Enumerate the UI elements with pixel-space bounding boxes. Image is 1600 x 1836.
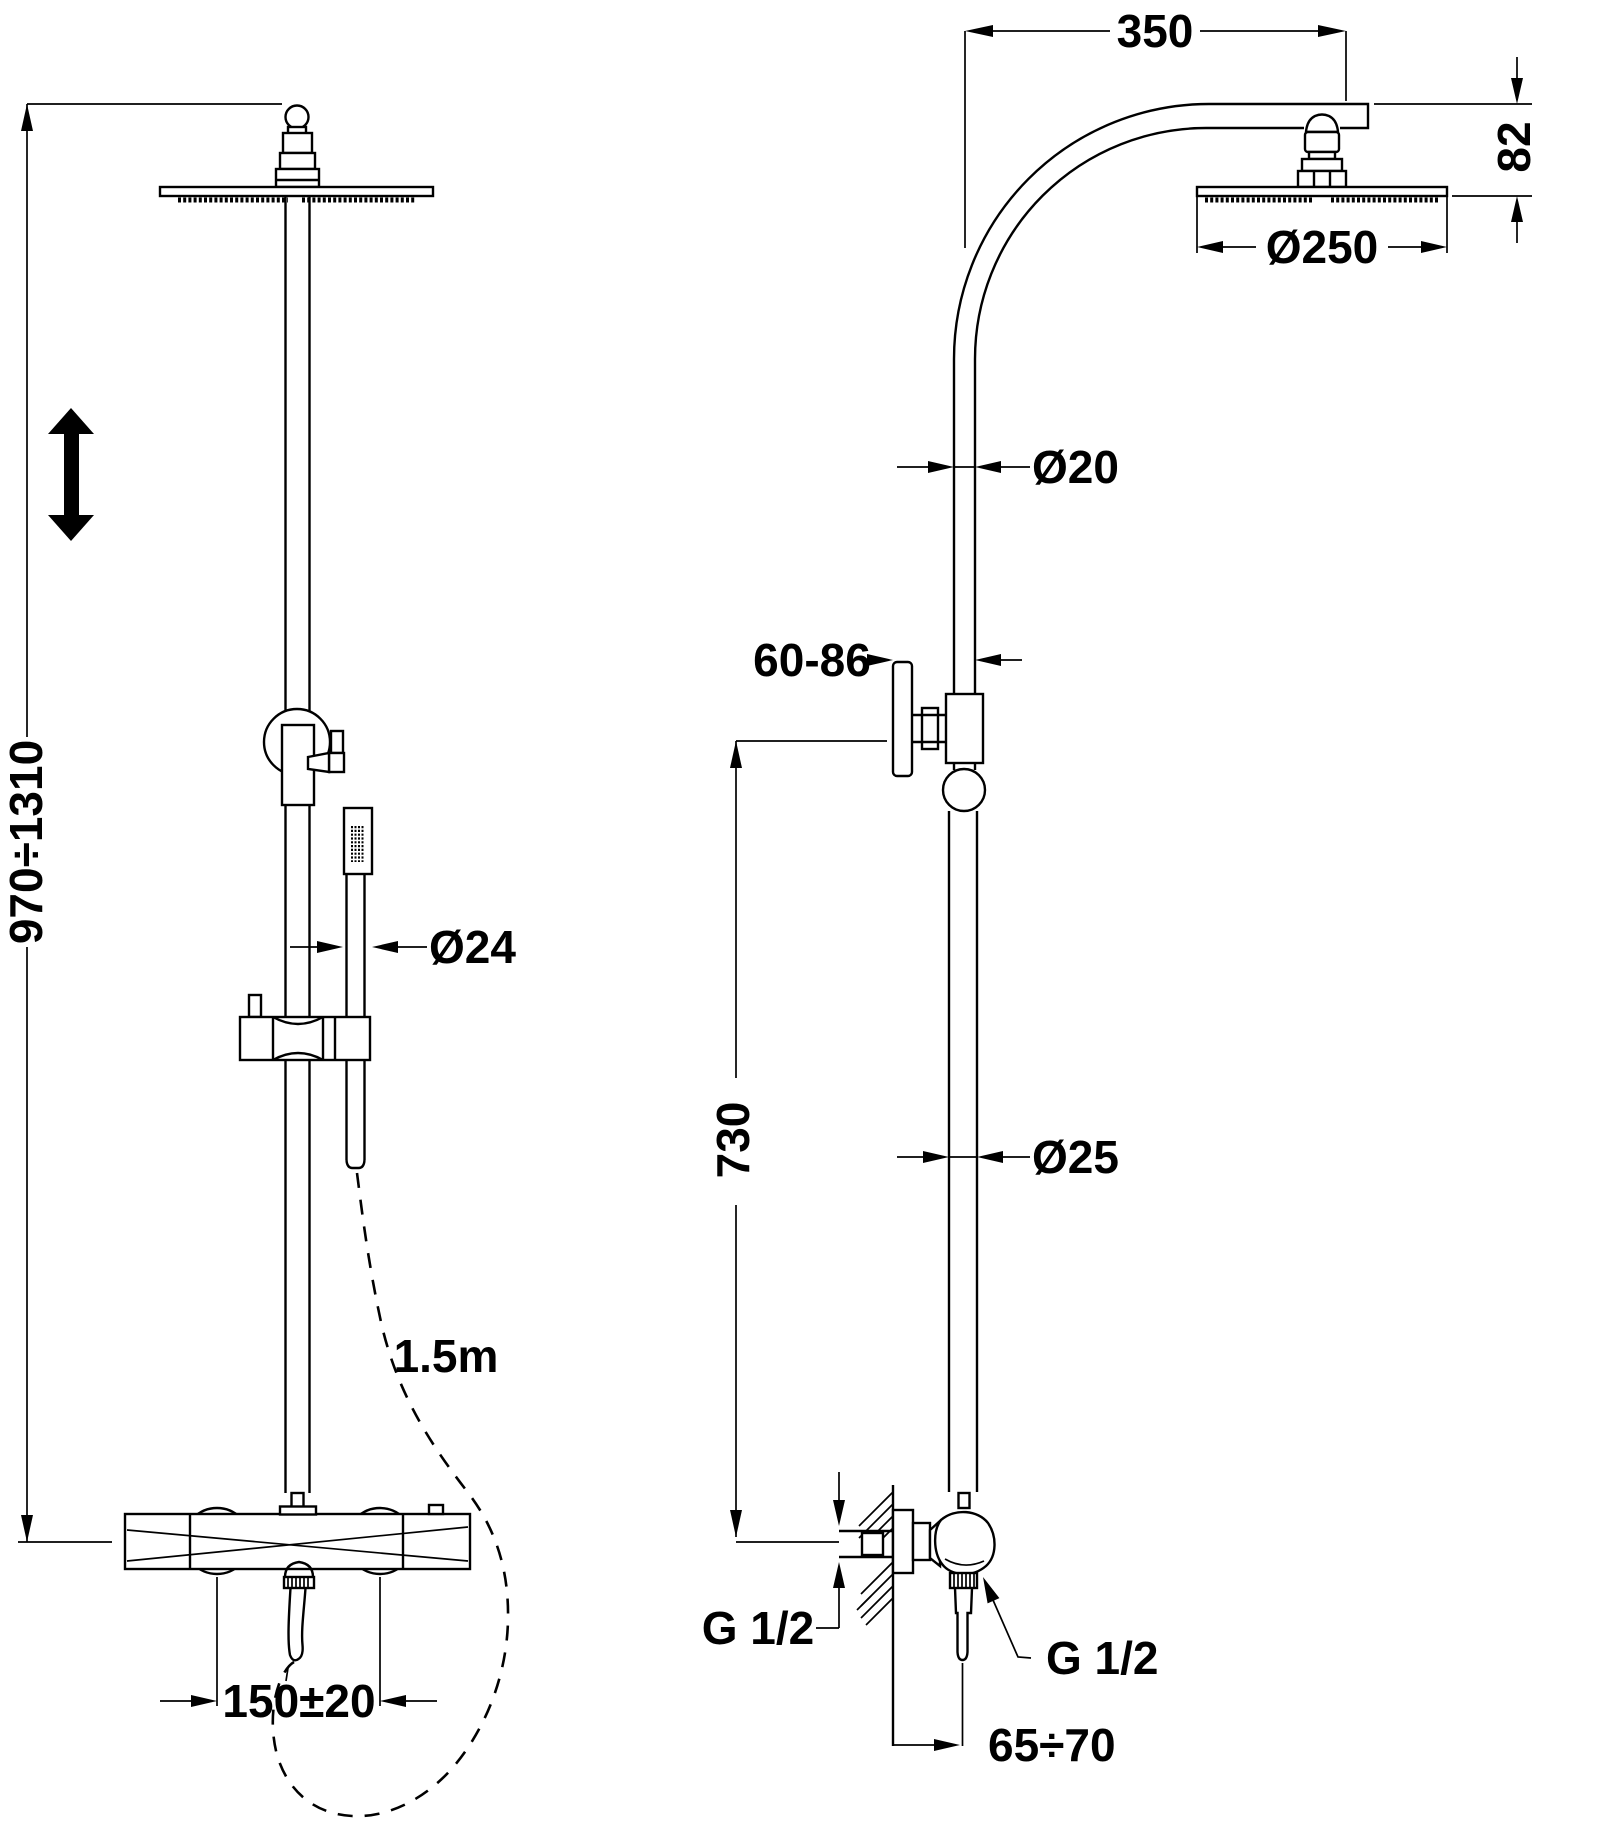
outlet-spout [955,1588,972,1660]
handshower-diameter-label: Ø24 [429,921,516,973]
wall-section [857,1485,893,1746]
head-plate [1197,187,1447,196]
up-arrowhead-icon [1511,196,1523,222]
inlet-thread-label: G 1/2 [702,1602,815,1654]
mixer-body [125,1493,470,1681]
valve-wall-flange [893,1510,913,1573]
handshower-head [344,808,372,874]
left-arrowhead-icon [975,654,1001,666]
lower-pipe-diameter-dimension: Ø25 [897,1131,1119,1183]
right-arrowhead-icon [928,461,954,473]
height-dimension: 970÷1310 [0,104,282,1542]
right-arrowhead-icon [934,1739,960,1751]
up-arrowhead-icon [21,104,33,131]
arm-projection-label: 350 [1117,5,1194,57]
connection-spacing-label: 150±20 [222,1675,375,1727]
height-range-label: 970÷1310 [0,740,52,944]
shower-column-technical-drawing: 970÷1310 [0,0,1600,1836]
mixer-housing [125,1514,470,1569]
side-view: 350 82 [702,5,1540,1771]
right-arrowhead-icon [191,1695,217,1707]
wall-clearance-dimension: 60-86 [753,634,1022,686]
right-arrowhead-icon [317,941,343,953]
right-arrowhead-icon [923,1151,949,1163]
upper-pipe-diameter-dimension: Ø20 [897,441,1119,493]
outlet-hose-stub [289,1588,306,1660]
down-arrowhead-icon [1511,78,1523,104]
side-riser-pipe [949,359,977,1492]
wall-flange [893,662,912,776]
head-height-dimension: 82 [1374,57,1540,243]
left-arrowhead-icon [965,25,993,37]
bracket-clamp [946,694,983,763]
front-riser-pipe [286,196,310,1493]
front-view: 970÷1310 [0,104,516,1816]
head-height-label: 82 [1488,121,1540,172]
upper-pipe-diameter-label: Ø20 [1032,441,1119,493]
hose-length-label: 1.5m [394,1330,499,1382]
left-arrowhead-icon [1197,241,1223,253]
head-plate [160,187,433,196]
connection-spacing-dimension: 150±20 [160,1577,437,1727]
lower-pipe-diameter-label: Ø25 [1032,1131,1119,1183]
left-arrowhead-icon [975,461,1001,473]
wall-bracket [893,662,985,811]
right-arrowhead-icon [1421,241,1447,253]
right-arrowhead-icon [867,654,893,666]
bracket-height-dimension: 730 [707,741,887,1542]
left-arrowhead-icon [372,941,398,953]
down-arrowhead-icon [730,1510,742,1537]
down-arrowhead-icon [21,1515,33,1542]
leader-arrowhead-icon [983,1577,999,1603]
shutoff-valve [839,1493,995,1746]
wall-to-outlet-label: 65÷70 [988,1719,1116,1771]
slider-hub [264,709,344,805]
pivot-knob [943,769,985,811]
ball-joint-icon [1306,115,1338,133]
hose-nipple [308,753,329,772]
mixer-knob [429,1505,443,1514]
head-diameter-dimension: Ø250 [1197,196,1447,273]
outlet-thread-label: G 1/2 [1046,1632,1159,1684]
height-adjust-arrow-icon [48,408,94,541]
clamp-pin [249,995,261,1017]
head-diameter-label: Ø250 [1266,221,1379,273]
riser-connector [959,1493,970,1508]
arm-projection-dimension: 350 [965,5,1346,248]
left-arrowhead-icon [977,1151,1003,1163]
up-arrowhead-icon [833,1562,845,1588]
handshower-handle-tip [347,1160,365,1168]
front-shower-head [160,106,433,201]
wall-clearance-label: 60-86 [753,634,871,686]
technical-drawing-page: 970÷1310 [0,0,1600,1836]
handshower [344,808,372,1168]
down-arrowhead-icon [833,1500,845,1526]
handshower-diameter-dimension: Ø24 [290,921,516,973]
rail-clamp [240,995,370,1060]
left-arrowhead-icon [380,1695,406,1707]
right-arrowhead-icon [1318,25,1346,37]
ball-joint-icon [286,106,309,129]
wall-to-outlet-dimension: 65÷70 [893,1719,1116,1771]
outlet-thread-annotation: G 1/2 [983,1577,1159,1684]
bracket-height-label: 730 [707,1102,759,1179]
inlet-hex-nut [862,1533,883,1555]
wall-hatching [857,1492,893,1625]
inlet-thread-annotation: G 1/2 [702,1472,845,1654]
